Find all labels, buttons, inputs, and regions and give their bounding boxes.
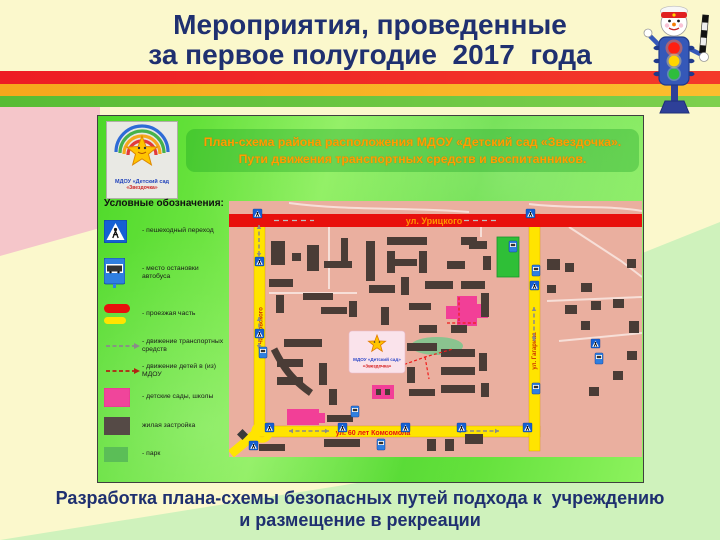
building <box>441 367 475 375</box>
slide: { "page": { "title": { "line1": "Меропри… <box>0 0 720 540</box>
legend-item-bus-stop: - место остановки автобуса <box>104 258 230 288</box>
legend-label: жилая застройка <box>142 422 228 430</box>
roadway-icon <box>104 304 142 325</box>
building <box>276 295 284 313</box>
legend-item-park: - парк <box>104 447 230 462</box>
building <box>481 293 489 317</box>
building <box>401 277 409 295</box>
school-building <box>446 306 457 319</box>
building <box>324 439 360 447</box>
map-legend: Условные обозначения: - пешеходный перех… <box>104 198 230 480</box>
building <box>581 321 590 330</box>
bus-stop-icon-bus <box>379 442 383 444</box>
building <box>565 263 574 272</box>
legend-label: - место остановки автобуса <box>142 265 228 281</box>
slide-caption: Разработка плана-схемы безопасных путей … <box>0 487 720 531</box>
legend-label: - движение детей в (из) МДОУ <box>142 363 228 379</box>
legend-item-kindergartens: - детские сады, школы <box>104 388 230 407</box>
building <box>319 363 327 385</box>
building <box>269 279 293 287</box>
building <box>292 253 301 261</box>
vehicle-traffic-arrow-icon <box>104 341 142 351</box>
legend-label: - детские сады, школы <box>142 393 228 401</box>
map-banner-line2: Пути движения транспортных средств и вос… <box>189 151 636 168</box>
legend-label: - парк <box>142 450 228 458</box>
park-swatch-icon <box>104 447 142 462</box>
city-map: ул. Урицкогоул. 60 лет Комсомолаул. Чайк… <box>229 201 642 457</box>
plan-scheme-poster: МДОУ «Детский сад «Звездочка» План-схема… <box>97 115 644 483</box>
residential-swatch-icon <box>104 417 142 435</box>
building <box>341 238 348 264</box>
map-banner-line1: План-схема района расположения МДОУ «Дет… <box>189 134 636 151</box>
building <box>445 439 454 451</box>
building <box>409 303 431 310</box>
legend-label: - движение транспортных средств <box>142 338 228 354</box>
street-top-label: ул. Урицкого <box>406 216 463 226</box>
logo-text-line2: «Звездочка» <box>107 185 177 191</box>
page-title: Мероприятия, проведенные за первое полуг… <box>20 10 720 69</box>
building <box>409 389 435 396</box>
building <box>381 307 389 325</box>
school-building <box>287 409 319 425</box>
bus-stop-icon-bus <box>511 244 515 246</box>
children-route-arrow-icon <box>104 366 142 376</box>
building <box>447 261 465 269</box>
star-logo-icon <box>110 122 174 174</box>
legend-item-roadway: - проезжая часть <box>104 304 230 325</box>
bus-stop-icon-bus <box>261 350 265 352</box>
legend-title: Условные обозначения: <box>104 198 230 209</box>
building <box>461 237 477 245</box>
legend-label: - пешеходный переход <box>142 227 228 235</box>
building <box>451 325 467 333</box>
legend-label: - проезжая часть <box>142 310 228 318</box>
traffic-light-mascot <box>638 2 714 116</box>
building <box>259 444 285 451</box>
building <box>441 349 475 357</box>
building <box>627 259 636 268</box>
building <box>479 353 487 371</box>
bus-stop-sign-icon <box>104 258 142 288</box>
building <box>483 256 491 270</box>
legend-item-children-route: - движение детей в (из) МДОУ <box>104 363 230 379</box>
building <box>419 325 437 333</box>
crosswalk-sign-icon <box>104 220 142 243</box>
bus-stop-icon-bus <box>534 386 538 388</box>
building <box>387 237 427 245</box>
building <box>303 293 333 300</box>
building <box>547 285 556 293</box>
page-title-line2: за первое полугодие 2017 года <box>20 40 720 70</box>
building <box>271 241 285 265</box>
school-building <box>372 385 394 399</box>
stripe-green <box>0 96 720 107</box>
legend-item-crosswalk: - пешеходный переход <box>104 220 230 243</box>
stripe-yellow <box>0 84 720 96</box>
building <box>284 339 322 347</box>
legend-item-residential: жилая застройка <box>104 417 230 435</box>
building <box>589 387 599 396</box>
bus-stop-icon-bus <box>534 268 538 270</box>
building <box>613 299 624 308</box>
building <box>629 321 639 333</box>
legend-item-vehicle-traffic: - движение транспортных средств <box>104 338 230 354</box>
building <box>581 283 592 292</box>
slide-caption-line2: и размещение в рекреации <box>0 509 720 531</box>
school-building <box>457 296 477 326</box>
slide-caption-line1: Разработка плана-схемы безопасных путей … <box>0 487 720 509</box>
building <box>427 439 436 451</box>
kindergarten-logo: МДОУ «Детский сад «Звездочка» <box>106 121 178 199</box>
building <box>425 281 453 289</box>
marker-star-eye <box>374 341 376 343</box>
kindergartens-schools-swatch-icon <box>104 388 142 407</box>
building <box>327 415 353 422</box>
building <box>481 383 489 397</box>
traffic-light-mascot-icon <box>638 2 714 116</box>
school-building <box>317 413 325 423</box>
building <box>465 434 483 444</box>
page-title-line1: Мероприятия, проведенные <box>20 10 720 40</box>
building <box>565 305 577 314</box>
building <box>441 385 475 393</box>
city-map-area: ул. Урицкогоул. 60 лет Комсомолаул. Чайк… <box>229 201 642 457</box>
building <box>547 259 560 270</box>
kindergarten-marker-line1: МДОУ «Детский сад» <box>353 356 401 362</box>
marker-star-eye <box>379 341 381 343</box>
building <box>393 259 417 266</box>
bus-stop-icon-bus <box>597 356 601 358</box>
building <box>321 307 347 314</box>
building <box>349 301 357 317</box>
building <box>591 301 601 310</box>
building <box>419 251 427 273</box>
building <box>407 367 415 383</box>
building <box>385 389 390 395</box>
building <box>613 371 623 380</box>
building <box>329 389 337 405</box>
building <box>369 285 395 293</box>
building <box>407 343 437 351</box>
stripe-red <box>0 71 720 84</box>
bus-stop-icon-bus <box>353 409 357 411</box>
building <box>376 389 381 395</box>
rainbow-stripes <box>0 71 720 107</box>
kindergarten-marker-line2: «Звездочка» <box>363 364 392 369</box>
building <box>366 241 375 281</box>
building <box>307 245 319 271</box>
map-banner-title: План-схема района расположения МДОУ «Дет… <box>186 129 639 172</box>
building <box>627 351 637 360</box>
building <box>461 281 485 289</box>
